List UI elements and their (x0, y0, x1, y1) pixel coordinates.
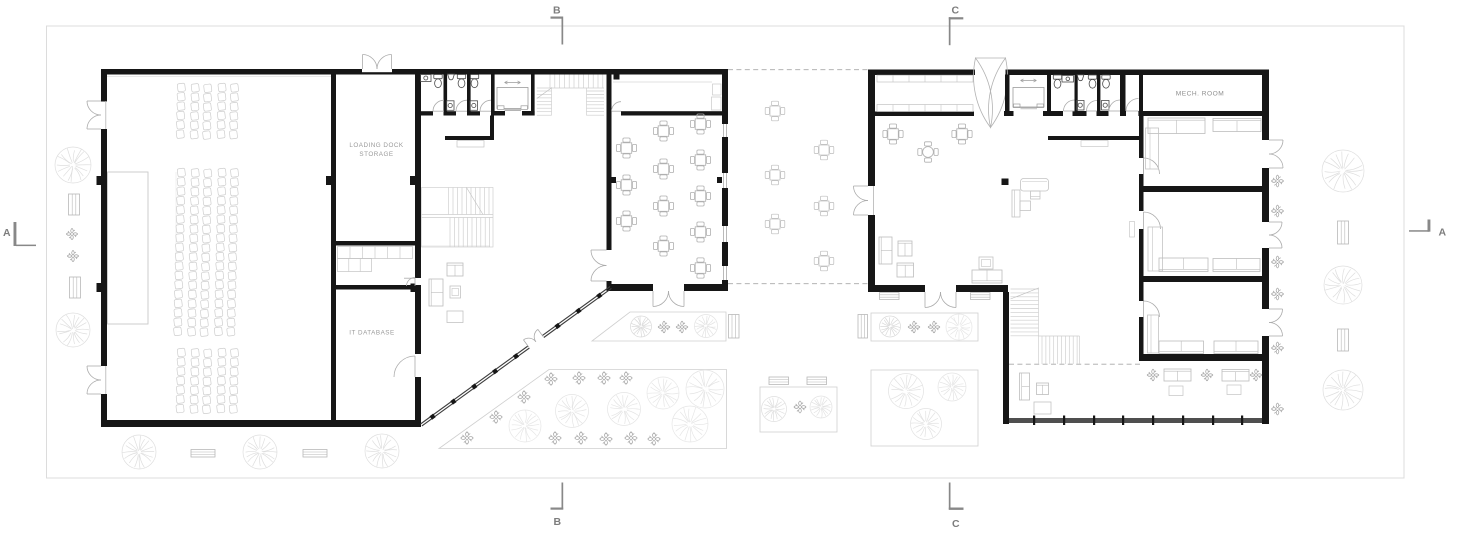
svg-text:C: C (952, 518, 960, 530)
svg-text:MECH. ROOM: MECH. ROOM (1176, 91, 1225, 98)
svg-text:STORAGE: STORAGE (359, 151, 393, 158)
svg-text:B: B (553, 5, 561, 17)
svg-text:A: A (3, 227, 11, 239)
svg-text:LOADING DOCK: LOADING DOCK (349, 142, 404, 149)
svg-text:B: B (554, 516, 562, 528)
svg-text:A: A (1439, 227, 1447, 239)
svg-text:IT DATABASE: IT DATABASE (349, 330, 394, 337)
svg-text:C: C (952, 5, 960, 17)
